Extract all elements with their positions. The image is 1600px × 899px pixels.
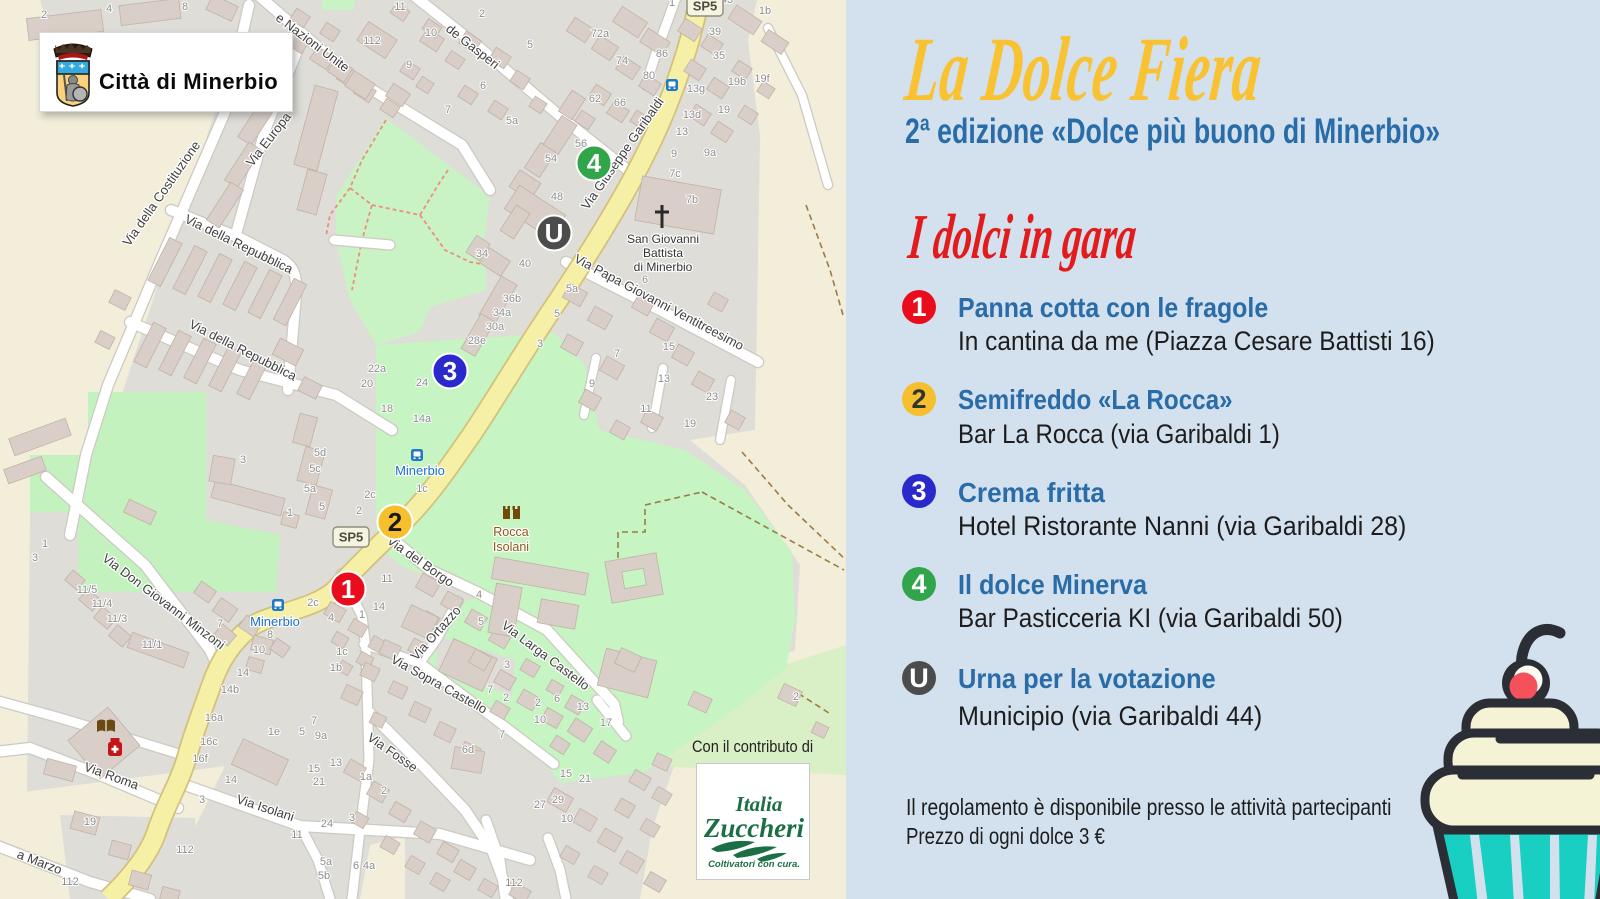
- svg-text:1: 1: [359, 609, 365, 621]
- svg-text:39: 39: [709, 26, 721, 38]
- svg-text:14: 14: [237, 667, 249, 679]
- svg-text:30a: 30a: [486, 321, 505, 333]
- svg-text:112: 112: [61, 876, 79, 888]
- svg-text:34: 34: [476, 248, 488, 260]
- svg-text:5a: 5a: [566, 283, 579, 295]
- svg-text:24: 24: [321, 818, 333, 830]
- svg-text:Zuccheri: Zuccheri: [703, 813, 804, 843]
- svg-text:13: 13: [658, 373, 670, 385]
- svg-text:U: U: [545, 218, 564, 248]
- svg-text:11/5: 11/5: [77, 584, 98, 596]
- svg-text:SP5: SP5: [693, 0, 718, 14]
- svg-text:20: 20: [361, 378, 373, 390]
- svg-text:5: 5: [554, 308, 560, 320]
- svg-text:36b: 36b: [503, 293, 521, 305]
- svg-text:7: 7: [487, 684, 493, 696]
- svg-text:16a: 16a: [205, 712, 224, 724]
- svg-text:5: 5: [527, 39, 533, 51]
- svg-text:18: 18: [381, 403, 393, 415]
- svg-text:10: 10: [253, 644, 265, 656]
- svg-text:5: 5: [478, 616, 484, 628]
- svg-text:112: 112: [176, 844, 194, 856]
- svg-text:5b: 5b: [318, 870, 330, 882]
- svg-text:4: 4: [328, 612, 334, 624]
- svg-text:54: 54: [545, 153, 557, 165]
- svg-text:7: 7: [499, 729, 505, 741]
- svg-text:11: 11: [291, 829, 302, 841]
- svg-text:2: 2: [388, 507, 402, 537]
- svg-text:4: 4: [476, 589, 482, 601]
- svg-text:13: 13: [676, 126, 688, 138]
- svg-text:2: 2: [793, 691, 799, 703]
- svg-text:6: 6: [353, 860, 359, 872]
- svg-text:11: 11: [640, 403, 651, 415]
- svg-text:10: 10: [425, 27, 437, 39]
- svg-text:5a: 5a: [320, 856, 333, 868]
- svg-text:11: 11: [394, 1, 405, 13]
- svg-text:9a: 9a: [704, 147, 717, 159]
- svg-text:5a: 5a: [506, 115, 519, 127]
- svg-text:3: 3: [443, 356, 457, 386]
- svg-text:24: 24: [416, 377, 428, 389]
- svg-text:15: 15: [308, 763, 320, 775]
- svg-text:11: 11: [381, 573, 392, 585]
- svg-text:3: 3: [537, 338, 543, 350]
- svg-text:66: 66: [614, 97, 626, 109]
- svg-text:19f: 19f: [754, 73, 770, 85]
- svg-text:5: 5: [319, 501, 325, 513]
- svg-text:di Minerbio: di Minerbio: [634, 260, 693, 274]
- svg-text:13: 13: [330, 757, 342, 769]
- svg-text:4: 4: [106, 3, 112, 15]
- svg-text:Isolani: Isolani: [493, 540, 529, 554]
- svg-text:2: 2: [381, 785, 387, 797]
- svg-text:48: 48: [551, 191, 563, 203]
- svg-text:8: 8: [182, 1, 188, 13]
- svg-text:17: 17: [600, 717, 612, 729]
- svg-text:14: 14: [225, 774, 237, 786]
- svg-text:28e: 28e: [468, 335, 486, 347]
- svg-text:1: 1: [42, 538, 48, 550]
- svg-text:3: 3: [349, 812, 355, 824]
- svg-text:11/3: 11/3: [107, 613, 128, 625]
- svg-text:1a: 1a: [360, 771, 373, 783]
- svg-text:2c: 2c: [307, 597, 319, 609]
- svg-text:9: 9: [589, 378, 595, 390]
- svg-text:112: 112: [505, 877, 523, 889]
- svg-text:14b: 14b: [221, 684, 239, 696]
- svg-text:19: 19: [684, 418, 696, 430]
- svg-text:1e: 1e: [268, 726, 280, 738]
- svg-text:1: 1: [341, 574, 355, 604]
- svg-text:14: 14: [373, 601, 385, 613]
- svg-text:21: 21: [313, 776, 325, 788]
- svg-text:7: 7: [217, 618, 223, 630]
- svg-text:19: 19: [718, 104, 730, 116]
- svg-text:2: 2: [479, 8, 485, 20]
- svg-text:22a: 22a: [368, 363, 387, 375]
- svg-text:1c: 1c: [336, 646, 348, 658]
- svg-text:7: 7: [311, 715, 317, 727]
- svg-text:19b: 19b: [728, 76, 746, 88]
- svg-text:Coltivatori con cura.: Coltivatori con cura.: [708, 859, 800, 870]
- svg-text:4a: 4a: [363, 860, 376, 872]
- svg-text:4: 4: [587, 148, 602, 178]
- svg-text:Battista: Battista: [643, 246, 683, 260]
- svg-text:15: 15: [663, 341, 675, 353]
- svg-text:11/1: 11/1: [142, 639, 163, 651]
- svg-text:62: 62: [589, 93, 601, 105]
- svg-text:10: 10: [561, 813, 573, 825]
- svg-text:2: 2: [41, 9, 47, 21]
- svg-text:Rocca: Rocca: [493, 525, 528, 539]
- svg-text:19: 19: [84, 816, 96, 828]
- svg-text:3: 3: [240, 454, 246, 466]
- svg-text:6d: 6d: [462, 744, 474, 756]
- svg-text:15: 15: [560, 768, 572, 780]
- svg-text:5: 5: [299, 726, 305, 738]
- svg-text:5a: 5a: [304, 483, 317, 495]
- svg-text:3: 3: [199, 794, 205, 806]
- svg-text:9: 9: [671, 148, 677, 160]
- svg-text:10: 10: [534, 714, 546, 726]
- svg-text:8: 8: [267, 629, 273, 641]
- svg-text:7: 7: [445, 104, 451, 116]
- svg-text:1b: 1b: [759, 5, 771, 17]
- svg-text:6: 6: [480, 80, 486, 92]
- svg-text:2: 2: [503, 692, 509, 704]
- svg-text:11/4: 11/4: [92, 598, 113, 610]
- svg-text:112: 112: [363, 35, 381, 47]
- svg-text:6: 6: [642, 274, 648, 286]
- svg-text:SP5: SP5: [339, 530, 364, 545]
- svg-text:6: 6: [554, 693, 560, 705]
- svg-text:1: 1: [669, 0, 675, 9]
- svg-text:3: 3: [504, 659, 510, 671]
- svg-text:1b: 1b: [330, 662, 342, 674]
- svg-text:72a: 72a: [591, 28, 610, 40]
- svg-text:29: 29: [552, 794, 564, 806]
- svg-text:27: 27: [534, 799, 546, 811]
- svg-text:80: 80: [643, 70, 655, 82]
- svg-text:21: 21: [579, 773, 591, 785]
- svg-text:16c: 16c: [200, 736, 218, 748]
- svg-text:13: 13: [577, 701, 589, 713]
- svg-text:40: 40: [519, 258, 531, 270]
- svg-text:Minerbio: Minerbio: [395, 463, 445, 478]
- svg-text:16f: 16f: [192, 753, 208, 765]
- svg-text:7b: 7b: [686, 194, 698, 206]
- svg-text:9a: 9a: [315, 730, 328, 742]
- svg-text:9: 9: [406, 59, 412, 71]
- svg-text:13g: 13g: [687, 83, 705, 95]
- svg-text:2c: 2c: [364, 489, 376, 501]
- svg-text:5d: 5d: [314, 447, 326, 459]
- svg-text:74: 74: [616, 55, 628, 67]
- svg-text:13d: 13d: [683, 109, 701, 121]
- svg-text:34a: 34a: [493, 307, 512, 319]
- svg-text:5c: 5c: [309, 463, 321, 475]
- svg-text:35: 35: [713, 50, 725, 62]
- svg-text:86: 86: [656, 48, 668, 60]
- svg-text:7c: 7c: [669, 168, 681, 180]
- svg-text:Minerbio: Minerbio: [250, 614, 300, 629]
- svg-text:7: 7: [614, 348, 620, 360]
- svg-text:3: 3: [32, 552, 38, 564]
- svg-text:1: 1: [287, 507, 293, 519]
- svg-text:2: 2: [356, 505, 362, 517]
- svg-text:2: 2: [535, 697, 541, 709]
- svg-text:1c: 1c: [416, 483, 428, 495]
- svg-text:San Giovanni: San Giovanni: [627, 232, 699, 246]
- svg-text:23: 23: [706, 391, 718, 403]
- svg-text:14a: 14a: [413, 413, 432, 425]
